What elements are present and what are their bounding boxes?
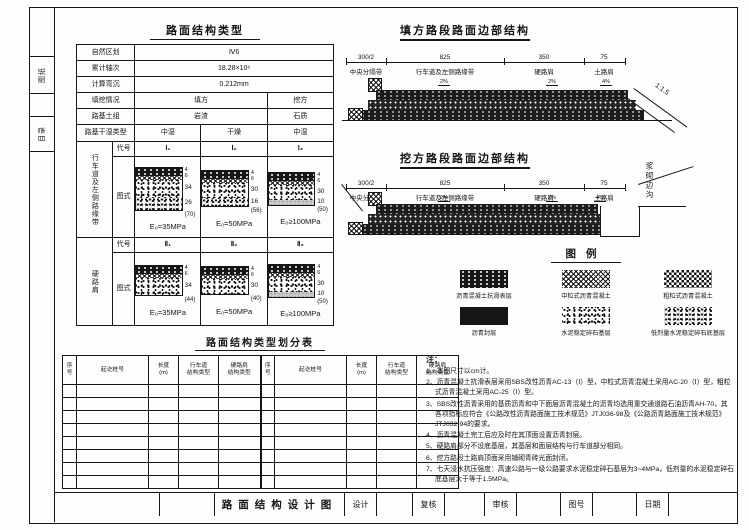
dim-tick	[584, 58, 585, 65]
value-cut: 挖方	[267, 93, 333, 109]
pavement-type-title: 路面结构类型	[150, 22, 260, 40]
col-lane-type: 行车道 结构类型	[179, 356, 219, 385]
row-label-soil-group: 路基土组	[77, 109, 135, 125]
pavement-surface	[376, 90, 628, 100]
note-item-7: 7、七天浸水抗压强度：高速公路与一级公路要求水泥稳定碎石基层为3~4MPa，低剂…	[426, 465, 734, 485]
fill-section-title: 填方路段路面边部结构	[400, 22, 530, 41]
dim-total: (70)	[185, 212, 196, 219]
base-layer	[269, 277, 314, 292]
note-item-3: 3、SBS改性沥青采用的基质沥青和中下面层沥青混凝土的沥青均选用重交通道路石油沥…	[426, 400, 734, 431]
col-length: 长度 (m)	[347, 356, 377, 385]
dim: 34	[185, 277, 192, 294]
legend-label: 中粒式沥青混凝土	[561, 291, 611, 300]
dim: 34	[185, 179, 192, 196]
code-label: 代号	[113, 142, 135, 157]
dim-tick	[584, 184, 585, 191]
legend-swatch-cement-base	[562, 307, 610, 325]
row-label-natural-zone: 自然区划	[77, 45, 135, 61]
value-soil-cut: 石质	[267, 109, 333, 125]
col-shoulder-type: 硬路肩 结构类型	[219, 356, 261, 385]
legend-title: 图例	[551, 246, 621, 263]
dim-median: 300/2	[358, 180, 374, 187]
note-item-2: 2、沥青混凝土抗滑表层采用SBS改性沥青AC-13（Ⅰ）型，中粒式沥青混凝土采用…	[426, 378, 734, 398]
base-layer	[136, 278, 181, 295]
division-table: 序 号 起讫桩号 长度 (m) 行车道 结构类型 硬路肩 结构类型 序 号 起讫…	[62, 355, 459, 489]
structure-diagram-II1: 4 6 34 (44)	[135, 261, 200, 304]
structure-diagram-II3: 4 6 30 10 (50)	[268, 260, 333, 306]
col-length: 长度 (m)	[149, 356, 179, 385]
dim-total: (50)	[317, 207, 328, 214]
note-item-1: 1、本图尺寸以cm计。	[426, 367, 734, 377]
diagram-cell-I1: 4 6 34 26 (70) E₀=35MPa	[135, 157, 201, 238]
structure-diagram-I3: 4 6 30 10 (50)	[268, 168, 333, 214]
legend-swatch-coarse-asphalt	[664, 270, 712, 288]
table-row	[63, 411, 459, 424]
legend-item: 沥青封层	[436, 307, 532, 337]
surface-course-layer	[269, 265, 314, 273]
title-block: 路面结构设计图 设计 复核 审核 图号 日期	[54, 492, 737, 516]
surface-course-layer	[202, 171, 247, 179]
code-II2: Ⅱ₂	[201, 238, 267, 253]
diagram-label: 图式	[113, 253, 135, 326]
code-I1: Ⅰ₁	[135, 142, 201, 157]
row-label-shoulder: 硬路肩	[77, 238, 113, 326]
dim-soil-shoulder: 75	[600, 54, 607, 61]
modulus-II3: E₀≥100MPa	[268, 310, 333, 318]
col-stake: 起讫桩号	[77, 356, 149, 385]
base-layer	[202, 279, 247, 294]
cross-slope-label: 2%	[438, 79, 450, 86]
table-row	[63, 476, 459, 489]
ground-line	[342, 120, 672, 121]
field-checked-value	[445, 493, 485, 516]
pavement-surface	[376, 204, 598, 214]
dim-total: (44)	[185, 297, 196, 304]
surface-course-layer	[136, 168, 181, 176]
table-row	[63, 398, 459, 411]
code-I3: Ⅰ₃	[267, 142, 333, 157]
field-checked: 复核	[413, 493, 445, 516]
legend-item: 中粒式沥青混凝土	[538, 270, 634, 300]
pavement-subbase	[360, 110, 644, 120]
legend-swatch-seal-coat	[460, 307, 508, 325]
base-layer	[202, 183, 247, 198]
field-drawing-no: 图号	[561, 493, 593, 516]
cut-section-drawing: 挖方路段路面边部结构 300/2 825 350 75 中央分隔带 行车道及左侧…	[338, 148, 738, 248]
code-II1: Ⅱ₁	[135, 238, 201, 253]
diagram-label: 图式	[113, 157, 135, 238]
dim: 30	[251, 278, 258, 293]
cross-slope-label: 2%	[546, 195, 558, 202]
base-layer	[136, 180, 181, 197]
dim-tick	[386, 184, 387, 191]
pavement-type-panel: 路面结构类型 自然区划 Ⅳ6 累计轴次 18.28×10⁶ 计算弯沉 0.212…	[76, 22, 334, 326]
dim: 30	[317, 184, 324, 199]
margin-tab-catalog-label: 目录	[37, 126, 47, 142]
dim-tick	[386, 58, 387, 65]
legend-label: 沥青封层	[472, 328, 497, 337]
dim-median: 300/2	[358, 54, 374, 61]
leveling-layer	[269, 292, 314, 297]
modulus-I1: E₀=35MPa	[135, 223, 200, 231]
value-soil-fill: 岩渣	[135, 109, 268, 125]
margin-tab-drawings: 图纸	[30, 56, 54, 94]
zone-soil-shoulder: 土路肩	[594, 66, 614, 76]
dim: 10	[317, 291, 324, 296]
dim-tick	[504, 58, 505, 65]
subbase-layer	[136, 197, 181, 210]
structure-diagram-I2: 4 6 30 16 (56)	[201, 166, 266, 215]
slope-ratio-label: 1:1.5	[653, 82, 670, 97]
structure-diagram-II2: 4 6 30 (40)	[201, 262, 266, 303]
zone-carriageway: 行车道及左侧路缘带	[416, 66, 475, 76]
division-table-title: 路面结构类型划分表	[195, 334, 325, 351]
fill-section-drawing: 填方路段路面边部结构 300/2 825 350 75 中央分隔带 行车道及左侧…	[338, 16, 738, 144]
value-axle-loads: 18.28×10⁶	[135, 61, 334, 77]
dim-hard-shoulder: 350	[539, 54, 550, 61]
legend-swatch-medium-asphalt	[562, 270, 610, 288]
dim-tick	[625, 184, 626, 191]
ditch-label: 浆砌边沟	[644, 162, 655, 230]
col-lane-type: 行车道 结构类型	[377, 356, 417, 385]
field-designed-value	[377, 493, 413, 516]
code-label: 代号	[113, 238, 135, 253]
note-item-5: 5、硬路肩部分不设底基层，其基层和面层结构与行车道部分相同。	[426, 442, 734, 452]
zone-median: 中央分隔带	[350, 66, 383, 76]
dim: 26	[185, 196, 192, 209]
margin-tab-catalog: 目录	[30, 116, 54, 152]
row-label-fill-cut: 填挖情况	[77, 93, 135, 109]
median-drain	[348, 222, 363, 235]
drawing-sheet: 图纸 目录 路面结构类型 自然区划 Ⅳ6 累计轴次 18.28×10⁶ 计算弯沉…	[0, 0, 749, 530]
dim: 10	[317, 199, 324, 204]
pavement-base	[368, 214, 600, 224]
note-item-4: 4、沥青混凝土完工后应及时在其顶面设置沥青封层。	[426, 431, 734, 441]
zone-hard-shoulder: 硬路肩	[534, 66, 554, 76]
field-designed: 设计	[345, 493, 377, 516]
dim-tick	[625, 58, 626, 65]
base-layer	[269, 185, 314, 200]
structure-diagram-I1: 4 6 34 26 (70)	[135, 163, 200, 219]
dim: 16	[251, 197, 258, 205]
notes-title: 注：	[426, 354, 734, 366]
title-block-blank	[160, 493, 215, 516]
field-drawing-no-value	[593, 493, 637, 516]
cross-slope-label: 2%	[438, 195, 450, 202]
dim-total: (40)	[251, 296, 262, 303]
surface-course-layer	[202, 267, 247, 275]
notes-panel: 注： 1、本图尺寸以cm计。 2、沥青混凝土抗滑表层采用SBS改性沥青AC-13…	[426, 354, 734, 486]
table-row	[63, 437, 459, 450]
col-seq: 序 号	[63, 356, 77, 385]
legend-item: 粗粒式沥青混凝土	[640, 270, 736, 300]
row-label-lane: 行车道及左侧路缘带	[77, 142, 113, 238]
note-item-6: 6、挖方路段土路肩顶面采用铺砌青砖光面封闭。	[426, 454, 734, 464]
value-natural-zone: Ⅳ6	[135, 45, 334, 61]
pavement-base	[368, 100, 636, 110]
table-row	[63, 385, 459, 398]
legend-swatch-antiskid	[460, 270, 508, 288]
diagram-cell-I2: 4 6 30 16 (56) E₀=50MPa	[201, 157, 267, 238]
modulus-I2: E₀=50MPa	[201, 220, 266, 228]
legend-label: 粗粒式沥青混凝土	[663, 291, 713, 300]
dim: 30	[251, 182, 258, 197]
value-fill: 填方	[135, 93, 268, 109]
field-reviewed-value	[517, 493, 561, 516]
dim-soil-shoulder: 75	[600, 180, 607, 187]
legend-item: 低剂量水泥稳定碎石底基层	[640, 307, 736, 337]
row-label-deflection: 计算弯沉	[77, 77, 135, 93]
modulus-II2: E₀=50MPa	[201, 308, 266, 316]
legend-item: 水泥稳定碎石基层	[538, 307, 634, 337]
pavement-subbase	[362, 224, 600, 234]
surface-course-layer	[269, 173, 314, 181]
side-ditch	[600, 206, 640, 237]
row-label-axle-loads: 累计轴次	[77, 61, 135, 77]
subbase-layer	[202, 198, 247, 206]
field-reviewed: 审核	[485, 493, 517, 516]
sheet-inner-border	[54, 7, 55, 522]
row-label-moisture: 路基干湿类型	[77, 125, 135, 142]
dim: 30	[317, 276, 324, 291]
diagram-cell-II3: 4 6 30 10 (50) E₀≥100MPa	[267, 253, 333, 326]
diagram-cell-II2: 4 6 30 (40) E₀=50MPa	[201, 253, 267, 326]
dim-total: (50)	[317, 299, 328, 306]
surface-course-layer	[136, 266, 181, 274]
cross-slope-label: 2%	[546, 79, 558, 86]
legend-swatch-subbase	[664, 307, 712, 325]
leveling-layer	[269, 200, 314, 205]
value-moisture-3: 中湿	[267, 125, 333, 142]
legend-item: 沥青混凝土抗滑表层	[436, 270, 532, 300]
legend-label: 低剂量水泥稳定碎石底基层	[651, 328, 725, 337]
cut-section-title: 挖方路段路面边部结构	[400, 150, 530, 169]
field-date: 日期	[637, 493, 669, 516]
modulus-II1: E₀=35MPa	[135, 309, 200, 317]
diagram-cell-I3: 4 6 30 10 (50) E₀≥100MPa	[267, 157, 333, 238]
drawing-title: 路面结构设计图	[215, 493, 345, 516]
col-seq: 序 号	[261, 356, 275, 385]
dim-tick	[346, 58, 347, 65]
diagram-cell-II1: 4 6 34 (44) E₀=35MPa	[135, 253, 201, 326]
code-II3: Ⅱ₃	[267, 238, 333, 253]
modulus-I3: E₀≥100MPa	[268, 218, 333, 226]
table-row	[63, 424, 459, 437]
margin-tab-drawings-label: 图纸	[37, 67, 47, 83]
code-I2: Ⅰ₂	[201, 142, 267, 157]
dim-tick	[504, 184, 505, 191]
title-block-blank	[54, 493, 160, 516]
value-moisture-2: 干燥	[201, 125, 267, 142]
legend-panel: 图例 沥青混凝土抗滑表层 中粒式沥青混凝土 粗粒式沥青混凝土 沥青封层 水	[436, 246, 736, 337]
pavement-type-table: 自然区划 Ⅳ6 累计轴次 18.28×10⁶ 计算弯沉 0.212mm 填挖情况…	[76, 44, 334, 326]
dim-hard-shoulder: 350	[539, 180, 550, 187]
value-deflection: 0.212mm	[135, 77, 334, 93]
field-date-value	[669, 493, 737, 516]
table-row	[63, 463, 459, 476]
division-table-panel: 路面结构类型划分表 序 号 起讫桩号 长度 (m) 行车道 结构类型 硬路肩 结…	[62, 334, 458, 489]
cross-slope-label: 4%	[594, 195, 606, 202]
legend-label: 水泥稳定碎石基层	[561, 328, 611, 337]
cross-slope-label: 4%	[600, 79, 612, 86]
dim-carriageway: 825	[440, 180, 451, 187]
value-moisture-1: 中湿	[135, 125, 201, 142]
median-drain	[348, 108, 363, 121]
dim-total: (56)	[251, 208, 262, 215]
dim-carriageway: 825	[440, 54, 451, 61]
col-stake: 起讫桩号	[275, 356, 347, 385]
table-row	[63, 450, 459, 463]
ground-line	[352, 234, 602, 235]
legend-label: 沥青混凝土抗滑表层	[456, 291, 512, 300]
